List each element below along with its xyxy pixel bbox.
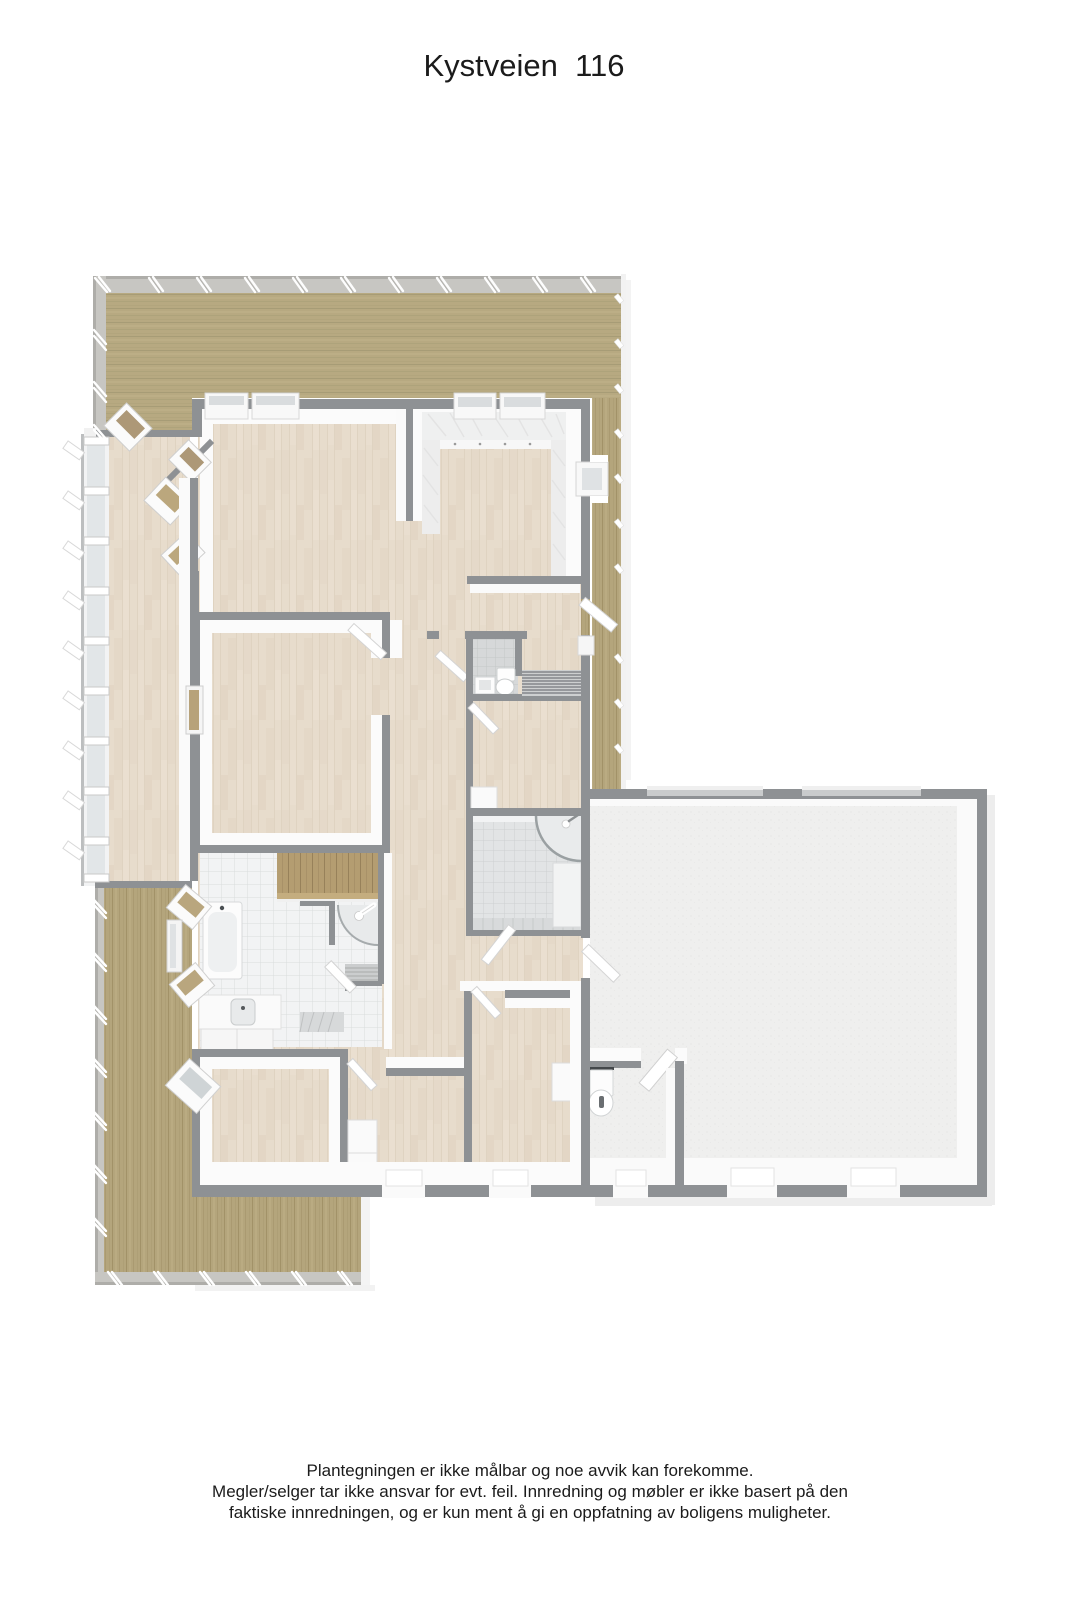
svg-text:Plantegningen er ikke målbar o: Plantegningen er ikke målbar og noe avvi… [307, 1461, 754, 1480]
svg-text:faktiske innredningen, og er k: faktiske innredningen, og er kun ment å … [229, 1503, 831, 1522]
svg-text:Megler/selger tar ikke ansvar: Megler/selger tar ikke ansvar for evt. f… [212, 1482, 848, 1501]
svg-text:Kystveien 116: Kystveien 116 [423, 48, 624, 83]
